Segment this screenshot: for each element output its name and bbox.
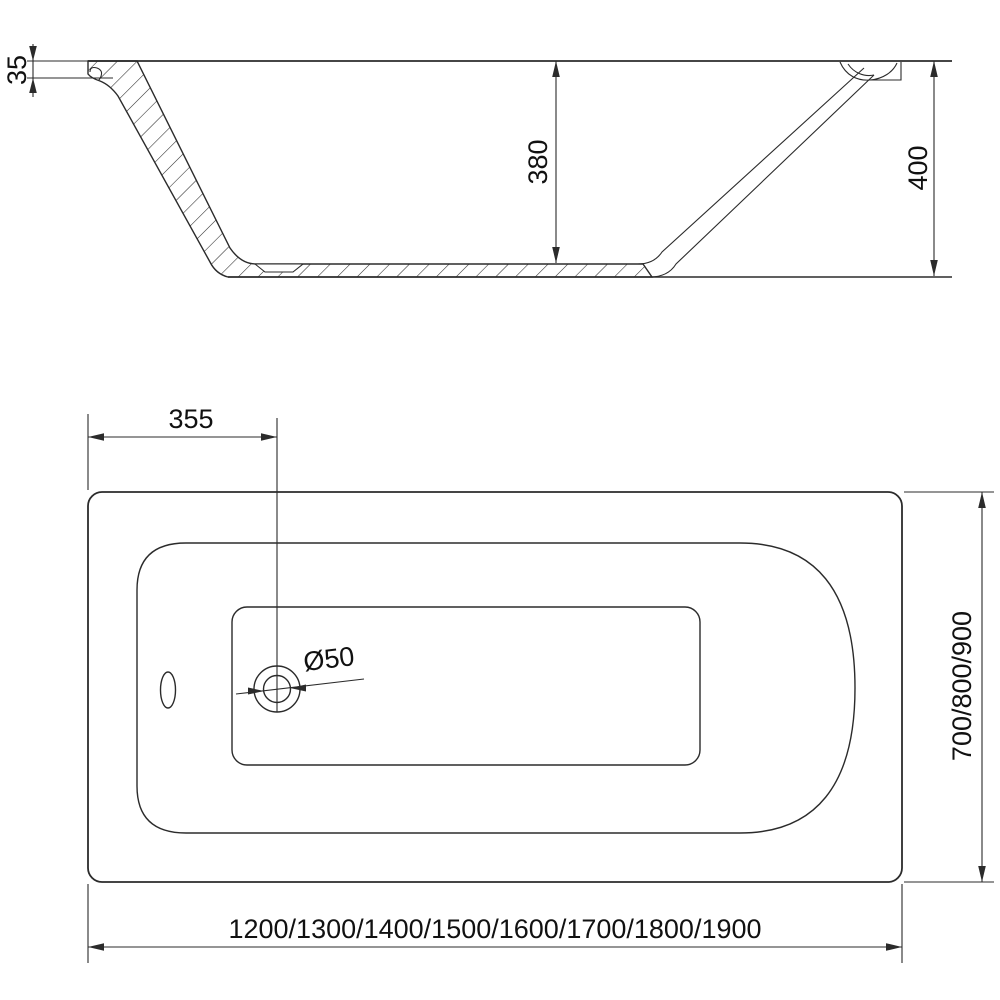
arrowhead-right (261, 433, 277, 441)
tub-rim-inner-edge (137, 543, 855, 833)
dim-label-drain-diameter: Ø50 (302, 641, 356, 677)
bathtub-technical-drawing: 35 380 400 (0, 0, 1000, 1000)
arrowhead-up (552, 61, 560, 77)
arrowhead-down (552, 247, 560, 263)
right-rim-inner-curve (848, 64, 874, 76)
arrowhead-down (978, 866, 986, 882)
dim-width-options: 700/800/900 (904, 492, 994, 882)
tub-shell-section (88, 61, 652, 277)
arrowhead-up (978, 492, 986, 508)
dim-label-width-options: 700/800/900 (947, 611, 977, 761)
arrowhead-left (88, 943, 104, 951)
dim-drain-offset: 355 (88, 404, 277, 490)
dim-label-overall-height: 400 (903, 145, 933, 190)
section-view: 35 380 400 (2, 44, 952, 277)
arrowhead-left (290, 685, 306, 692)
dim-label-length-options: 1200/1300/1400/1500/1600/1700/1800/1900 (228, 914, 761, 944)
arrowhead-right (248, 688, 264, 695)
drawing-canvas: 35 380 400 (0, 0, 1000, 1000)
dim-label-drain-offset: 355 (168, 404, 213, 434)
overflow-hole (161, 672, 176, 708)
arrowhead-up (930, 61, 938, 77)
plan-view: 355 Ø50 1200/1300/1400/1500/1600/1700/18… (88, 404, 994, 963)
tub-outer-edge (88, 492, 902, 882)
dim-label-rim-thickness: 35 (2, 55, 32, 85)
dim-drain-diameter: Ø50 (236, 641, 364, 694)
dim-length-options: 1200/1300/1400/1500/1600/1700/1800/1900 (88, 884, 902, 963)
dim-overall-height: 400 (903, 61, 938, 276)
arrowhead-left (88, 433, 104, 441)
dim-label-inner-depth: 380 (523, 139, 553, 184)
arrowhead-right (886, 943, 902, 951)
dim-inner-depth: 380 (523, 61, 560, 263)
far-wall-line-outer (650, 75, 874, 277)
far-wall-line-inner (638, 68, 864, 264)
arrowhead-down (930, 260, 938, 276)
